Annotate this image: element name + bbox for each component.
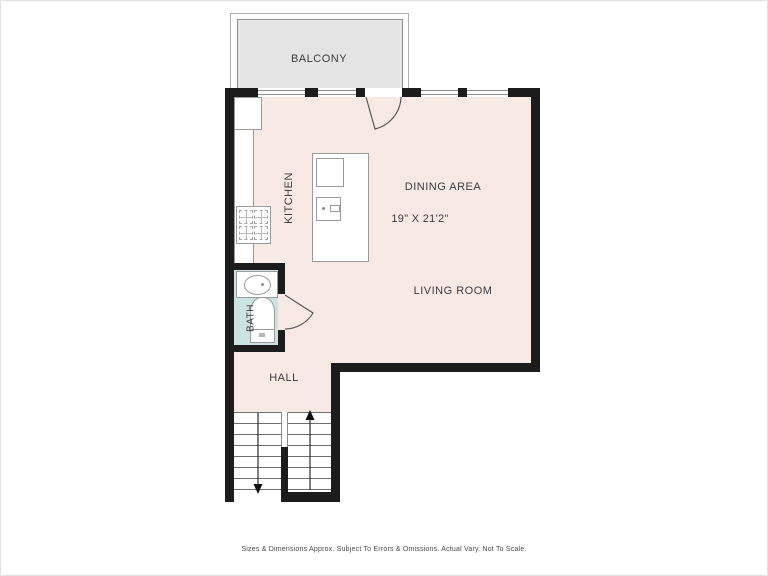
room-dimensions-label: 19" X 21'2": [391, 213, 448, 225]
window: [258, 88, 305, 97]
living-room-label: LIVING ROOM: [414, 285, 493, 297]
kitchen-label: KITCHEN: [283, 172, 295, 224]
balcony-label: BALCONY: [291, 53, 347, 65]
stove-icon: [236, 206, 271, 244]
sink-icon: [316, 197, 341, 221]
wall-segment: [331, 363, 340, 502]
floor-plan: BALCONY KITCHEN DINING AREA 19" X 21'2" …: [0, 0, 768, 576]
faucet-icon: [330, 205, 340, 212]
wall-segment: [281, 492, 340, 502]
window: [318, 88, 356, 97]
burner-icon: [239, 226, 253, 240]
bath-label: BATH: [246, 304, 257, 332]
window: [421, 88, 458, 97]
hall-label: HALL: [269, 372, 299, 384]
vanity-sink-icon: [236, 271, 278, 298]
stairs-down-flight: [233, 412, 281, 492]
basin-icon: [244, 275, 271, 295]
bath-wall: [278, 263, 285, 294]
toilet-flush: [259, 333, 265, 337]
island-cabinet: [316, 158, 344, 187]
disclaimer-text: Sizes & Dimensions Approx. Subject To Er…: [241, 546, 526, 553]
burner-icon: [254, 226, 268, 240]
stairs-up-flight: [288, 412, 331, 492]
kitchen-island: [312, 153, 369, 262]
wall-segment: [281, 447, 288, 492]
wall-segment: [531, 88, 540, 372]
dining-area-label: DINING AREA: [405, 181, 481, 193]
balcony-door-opening: [365, 88, 402, 97]
window: [467, 88, 508, 97]
stairs-divider: [281, 412, 288, 447]
burner-icon: [254, 210, 268, 224]
burner-icon: [239, 210, 253, 224]
wall-segment: [225, 88, 234, 502]
main-room-floor: [234, 97, 531, 363]
bath-wall: [230, 345, 285, 352]
fridge-icon: [234, 97, 262, 130]
wall-segment: [331, 363, 540, 372]
